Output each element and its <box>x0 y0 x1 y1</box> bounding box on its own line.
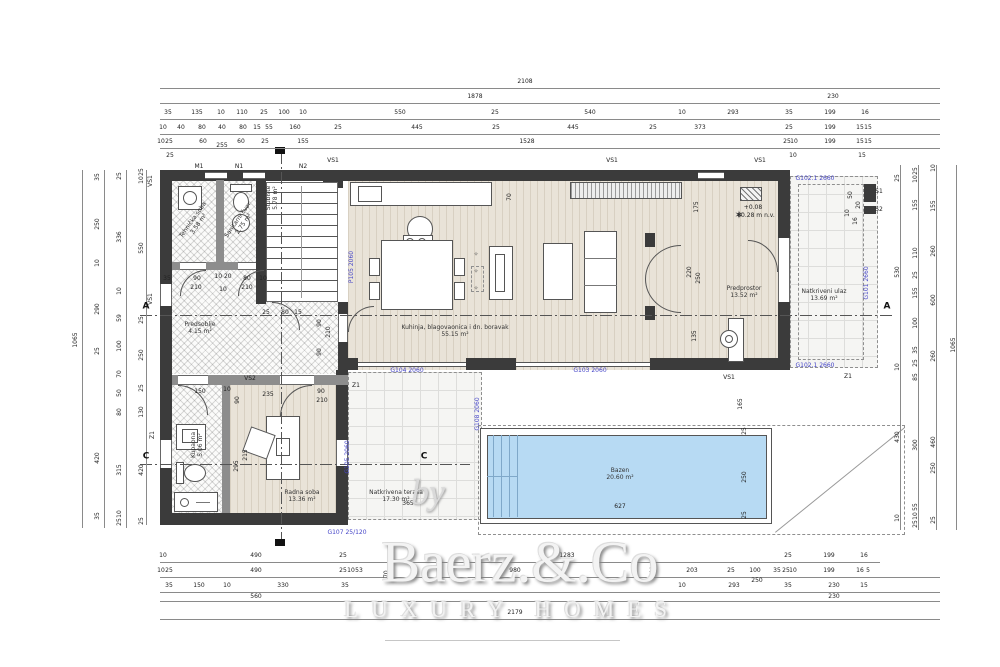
interior-dimension: 25 <box>262 310 270 316</box>
interior-dimension: 235 <box>262 392 273 398</box>
interior-dimension: 210 <box>316 398 327 404</box>
bottom-dimension: 15 <box>860 583 868 589</box>
bottom-dimension: 1283 <box>559 553 574 559</box>
top-dimension: 10 <box>678 110 686 116</box>
interior-dimension: 165 <box>738 398 744 409</box>
interior-dimension: 175 <box>694 201 700 212</box>
top-dimension: 25 <box>165 139 173 145</box>
interior-dimension: 135 <box>692 330 698 341</box>
top-dimension: 25 <box>491 110 499 116</box>
interior-dimension: 250 <box>742 471 748 482</box>
left-dimension: 10 <box>95 259 101 267</box>
bottom-dimension: 16 <box>860 553 868 559</box>
section-marker: C <box>421 453 428 462</box>
top-dimension: 10 <box>789 153 797 159</box>
left-dimension: 59 <box>117 314 123 322</box>
wall-type-label: VS1 <box>606 158 618 164</box>
interior-dimension: 80 <box>281 310 289 316</box>
room-label-sanitarni-vor: Sanitarni čvor2.75 m² <box>223 201 259 243</box>
right-dimension: 10 <box>913 175 919 183</box>
opening-code: G102.1 2660 <box>795 176 834 182</box>
bottom-dimension: 150 <box>193 583 204 589</box>
bottom-dimension: 250 <box>751 578 762 584</box>
right-dimension: 55 <box>913 503 919 511</box>
wall-type-label: S1 <box>875 189 883 195</box>
top-dimension: 230 <box>827 94 838 100</box>
top-dimension: 15 <box>253 125 261 131</box>
interior-dimension: 210 <box>326 326 332 337</box>
interior-dimension: 20 <box>856 201 862 209</box>
section-marker: C <box>143 453 150 462</box>
island-symbol: ✧ <box>473 286 478 292</box>
right-dimension: 25 <box>913 359 919 367</box>
top-dimension: 15 <box>856 139 864 145</box>
left-dimension: 10 <box>117 287 123 295</box>
bottom-dimension: 490 <box>250 568 261 574</box>
opening-code: G108 2060 <box>475 397 481 430</box>
left-dimension: 1065 <box>73 332 79 347</box>
bottom-dimension: 16 <box>856 568 864 574</box>
bottom-dimension: 25 <box>339 553 347 559</box>
right-dimension: 10 <box>913 512 919 520</box>
top-dimension: 15 <box>858 153 866 159</box>
bottom-dimension: 10 <box>789 568 797 574</box>
interior-dimension: 90 <box>317 319 323 327</box>
top-dimension: 1878 <box>467 94 482 100</box>
bottom-dimension: 35 <box>165 583 173 589</box>
right-dimension: 530 <box>895 266 901 277</box>
bottom-dimension: 980 <box>509 568 520 574</box>
interior-dimension: 150 <box>194 389 205 395</box>
wall-type-label: VS1 <box>754 158 766 164</box>
opening-code: G105 2060 <box>345 440 351 473</box>
top-dimension: 199 <box>824 125 835 131</box>
interior-dimension: 90 <box>235 396 241 404</box>
interior-dimension: 15 <box>294 310 302 316</box>
wall-type-label: Z1 <box>844 374 852 380</box>
bottom-dimension: 25 <box>165 568 173 574</box>
top-dimension: 255 <box>216 143 227 149</box>
right-dimension: 10 <box>895 363 901 371</box>
left-dimension: 25 <box>117 172 123 180</box>
island-symbol: ✧ <box>473 252 478 258</box>
floor-plan-canvas: 2108187823035135101102510010550255401029… <box>0 0 1000 667</box>
opening-code: G104 2060 <box>390 368 423 374</box>
top-dimension: 110 <box>236 110 247 116</box>
top-dimension: 10 <box>217 110 225 116</box>
bottom-dimension: 203 <box>686 568 697 574</box>
left-dimension: 80 <box>117 408 123 416</box>
top-dimension: 373 <box>694 125 705 131</box>
right-dimension: 430 <box>895 431 901 442</box>
top-dimension: 55 <box>265 125 273 131</box>
bottom-dimension: 25 <box>784 553 792 559</box>
opening-code: G101 2660 <box>864 266 870 299</box>
wall-type-label: VS1 <box>148 175 154 187</box>
bottom-dimension: 25 <box>339 568 347 574</box>
right-dimension: 600 <box>931 294 937 305</box>
left-dimension: 130 <box>139 406 145 417</box>
left-dimension: 25 <box>139 316 145 324</box>
room-label-natkrivena-terasa: Natkrivena terasa17.30 m² <box>369 489 423 503</box>
opening-code: G107 25/120 <box>327 530 366 536</box>
left-dimension: 420 <box>95 452 101 463</box>
top-dimension: 550 <box>394 110 405 116</box>
left-dimension: 70 <box>117 370 123 378</box>
top-dimension: 445 <box>411 125 422 131</box>
bottom-dimension: 570 <box>384 570 390 581</box>
bottom-dimension: 100 <box>749 568 760 574</box>
wall-type-label: Z1 <box>150 431 156 439</box>
right-dimension: 1065 <box>951 337 957 352</box>
wall-type-label: S2 <box>875 207 883 213</box>
opening-code: P105 2060 <box>349 251 355 283</box>
bottom-dimension: 5 <box>866 568 870 574</box>
top-dimension: 60 <box>199 139 207 145</box>
interior-dimension: 50 <box>848 191 854 199</box>
top-dimension: 80 <box>198 125 206 131</box>
top-dimension: 25 <box>492 125 500 131</box>
top-dimension: 25 <box>166 153 174 159</box>
interior-dimension: 90 <box>193 276 201 282</box>
interior-dimension: 215 <box>243 449 249 460</box>
top-dimension: 155 <box>297 139 308 145</box>
interior-dimension: 90 <box>317 348 323 356</box>
opening-code: G103 2060 <box>573 368 606 374</box>
wall-type-label: Z1 <box>352 383 360 389</box>
wall-type-label: VS1 <box>327 158 339 164</box>
left-dimension: 100 <box>117 340 123 351</box>
bottom-dimension: 2179 <box>507 610 522 616</box>
watermark-rule <box>385 640 620 641</box>
wall-type-label: M1 <box>195 164 204 170</box>
bottom-dimension: 230 <box>828 594 839 600</box>
right-dimension: 25 <box>913 520 919 528</box>
top-dimension: 1528 <box>519 139 534 145</box>
left-dimension: 336 <box>117 231 123 242</box>
right-dimension: 100 <box>913 317 919 328</box>
wall-type-label: N1 <box>235 164 243 170</box>
top-dimension: 10 <box>159 125 167 131</box>
left-dimension: 10 <box>117 510 123 518</box>
top-dimension: 10 <box>299 110 307 116</box>
room-label-predprostor: Predprostor13.52 m² <box>727 285 762 299</box>
bottom-dimension: 10 <box>678 583 686 589</box>
bottom-dimension: 35 <box>341 583 349 589</box>
top-dimension: 25 <box>261 139 269 145</box>
interior-dimension: 10 20 <box>214 274 231 280</box>
interior-dimension: 210 <box>190 285 201 291</box>
room-label-predsoblje: Predsoblje4.15 m² <box>185 321 216 335</box>
top-dimension: 25 <box>649 125 657 131</box>
left-dimension: 25 <box>139 517 145 525</box>
bottom-dimension: 10 <box>157 568 165 574</box>
top-dimension: 135 <box>191 110 202 116</box>
wall-type-label: VS2 <box>244 376 256 382</box>
room-label-natkriveni-ulaz: Natkriveni ulaz13.69 m² <box>801 288 846 302</box>
interior-dimension: 25 <box>742 427 748 435</box>
right-dimension: 10 <box>931 164 937 172</box>
opening-code: G102.1 2660 <box>795 363 834 369</box>
top-dimension: 160 <box>289 125 300 131</box>
right-dimension: 300 <box>913 439 919 450</box>
wall-type-label: N2 <box>299 164 307 170</box>
left-dimension: 25 <box>139 168 145 176</box>
interior-dimension: 10 <box>259 276 267 282</box>
left-dimension: 35 <box>95 512 101 520</box>
right-dimension: 155 <box>931 200 937 211</box>
interior-dimension: 35 <box>163 276 171 282</box>
right-dimension: 155 <box>913 287 919 298</box>
top-dimension: 25 <box>785 125 793 131</box>
bottom-dimension: 199 <box>823 568 834 574</box>
interior-dimension: 10 <box>219 287 227 293</box>
top-dimension: 35 <box>785 110 793 116</box>
top-dimension: 16 <box>861 110 869 116</box>
right-dimension: 25 <box>913 167 919 175</box>
room-label-bazen: Bazen20.60 m² <box>606 467 633 481</box>
room-label-tehni-ka-soba: Tehnička soba3.58 m² <box>178 201 214 244</box>
right-dimension: 250 <box>931 462 937 473</box>
interior-dimension: 220 <box>687 266 693 277</box>
bottom-dimension: 35 <box>773 568 781 574</box>
interior-dimension: +0.08 <box>744 205 762 211</box>
bottom-dimension: 10 <box>159 553 167 559</box>
room-label-radna-soba: Radna soba13.36 m² <box>284 489 319 503</box>
top-dimension: 60 <box>237 139 245 145</box>
right-dimension: 25 <box>913 271 919 279</box>
right-dimension: 155 <box>913 199 919 210</box>
annotation-layer: 2108187823035135101102510010550255401029… <box>0 0 1000 667</box>
bottom-dimension: 25 <box>649 568 657 574</box>
top-dimension: 15 <box>864 139 872 145</box>
left-dimension: 550 <box>139 242 145 253</box>
interior-dimension: 10 <box>223 387 231 393</box>
room-label-kuhinja-blagovaonica-i-dn-boravak: Kuhinja, blagovaonica i dn. boravak55.15… <box>401 324 508 338</box>
left-dimension: 250 <box>95 218 101 229</box>
top-dimension: 35 <box>164 110 172 116</box>
right-dimension: 460 <box>931 436 937 447</box>
left-dimension: 25 <box>95 347 101 355</box>
top-dimension: 15 <box>864 125 872 131</box>
room-label-kupaona: Kupaona5.06 m² <box>190 432 204 458</box>
top-dimension: 40 <box>177 125 185 131</box>
bottom-dimension: 330 <box>277 583 288 589</box>
left-dimension: 35 <box>95 173 101 181</box>
section-marker: A <box>143 303 150 312</box>
right-dimension: 110 <box>913 247 919 258</box>
bottom-dimension: 10 <box>223 583 231 589</box>
room-label-stubi-te: Stubište5.78 m² <box>265 186 279 211</box>
top-dimension: 199 <box>824 110 835 116</box>
top-dimension: 100 <box>278 110 289 116</box>
interior-dimension: 16 <box>853 217 859 225</box>
interior-dimension: 295 <box>234 460 240 471</box>
interior-dimension: 70 <box>507 193 513 201</box>
section-marker: A <box>884 303 891 312</box>
bottom-dimension: 230 <box>828 583 839 589</box>
top-dimension: 25 <box>334 125 342 131</box>
right-dimension: 10 <box>895 514 901 522</box>
right-dimension: 260 <box>931 245 937 256</box>
bottom-dimension: 293 <box>728 583 739 589</box>
interior-dimension: 250 <box>696 272 702 283</box>
north-symbol: ✶ <box>734 210 743 221</box>
top-dimension: 293 <box>727 110 738 116</box>
left-dimension: 50 <box>117 389 123 397</box>
interior-dimension: 10 <box>845 209 851 217</box>
wall-type-label: VS1 <box>723 375 735 381</box>
bottom-dimension: 560 <box>250 594 261 600</box>
top-dimension: 10 <box>790 139 798 145</box>
top-dimension: 80 <box>239 125 247 131</box>
right-dimension: 35 <box>913 346 919 354</box>
bottom-dimension: 10 <box>347 568 355 574</box>
right-dimension: 85 <box>913 373 919 381</box>
left-dimension: 420 <box>139 464 145 475</box>
left-dimension: 25 <box>117 518 123 526</box>
bottom-dimension: 35 <box>784 583 792 589</box>
bottom-dimension: 199 <box>823 553 834 559</box>
interior-dimension: 25 <box>742 511 748 519</box>
top-dimension: 25 <box>260 110 268 116</box>
left-dimension: 250 <box>139 349 145 360</box>
interior-dimension: 627 <box>614 504 625 510</box>
interior-dimension: 90 <box>317 389 325 395</box>
right-dimension: 25 <box>931 516 937 524</box>
top-dimension: 15 <box>856 125 864 131</box>
top-dimension: 540 <box>584 110 595 116</box>
bottom-dimension: 53 <box>355 568 363 574</box>
left-dimension: 25 <box>139 384 145 392</box>
top-dimension: 2108 <box>517 79 532 85</box>
top-dimension: 40 <box>218 125 226 131</box>
left-dimension: 290 <box>95 303 101 314</box>
interior-dimension: 80 <box>243 276 251 282</box>
interior-dimension: 210 <box>241 285 252 291</box>
bottom-dimension: 490 <box>250 553 261 559</box>
top-dimension: 445 <box>567 125 578 131</box>
right-dimension: 260 <box>931 350 937 361</box>
island-symbol: ✧ <box>473 269 478 275</box>
left-dimension: 10 <box>139 176 145 184</box>
right-dimension: 25 <box>895 174 901 182</box>
top-dimension: 10 <box>157 139 165 145</box>
left-dimension: 315 <box>117 464 123 475</box>
top-dimension: 199 <box>824 139 835 145</box>
bottom-dimension: 25 <box>727 568 735 574</box>
